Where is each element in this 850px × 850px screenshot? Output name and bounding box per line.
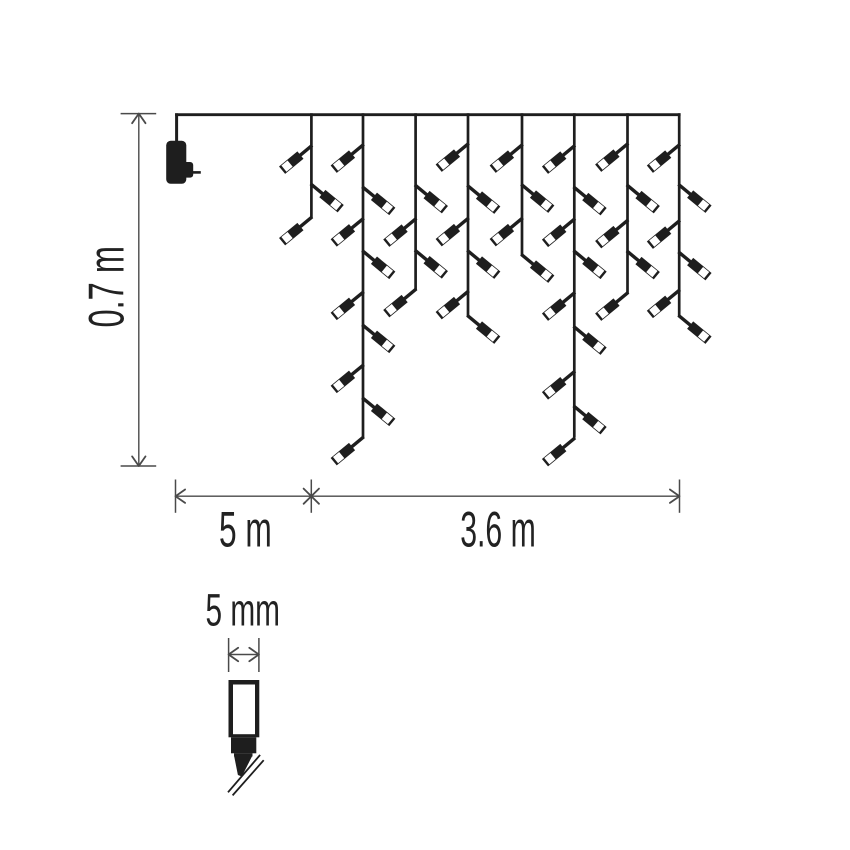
svg-text:3.6 m: 3.6 m xyxy=(460,502,536,558)
svg-text:0.7 m: 0.7 m xyxy=(78,246,134,327)
svg-text:5 mm: 5 mm xyxy=(206,585,280,636)
svg-text:5 m: 5 m xyxy=(219,501,272,557)
